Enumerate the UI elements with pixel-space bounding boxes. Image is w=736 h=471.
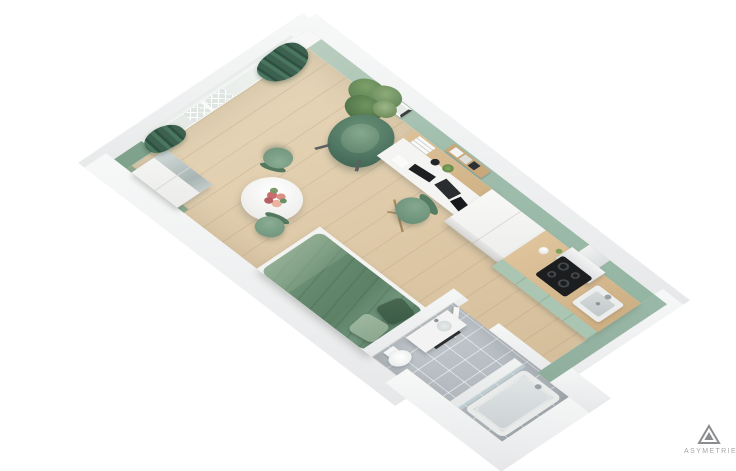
burner: [555, 261, 571, 273]
logo-text: ASYMETRIE: [684, 448, 734, 455]
laptop: [434, 179, 461, 200]
book: [468, 161, 481, 170]
triangle-logo-icon: [697, 424, 721, 446]
keyboard: [408, 164, 436, 183]
armchair-cushion: [333, 118, 388, 158]
notepad: [391, 155, 410, 169]
burner: [556, 278, 572, 290]
studio-logo: ASYMETRIE: [684, 424, 734, 455]
burner: [545, 270, 558, 279]
floor-plan-render: ASYMETRIE: [0, 0, 736, 471]
burner: [569, 271, 582, 280]
